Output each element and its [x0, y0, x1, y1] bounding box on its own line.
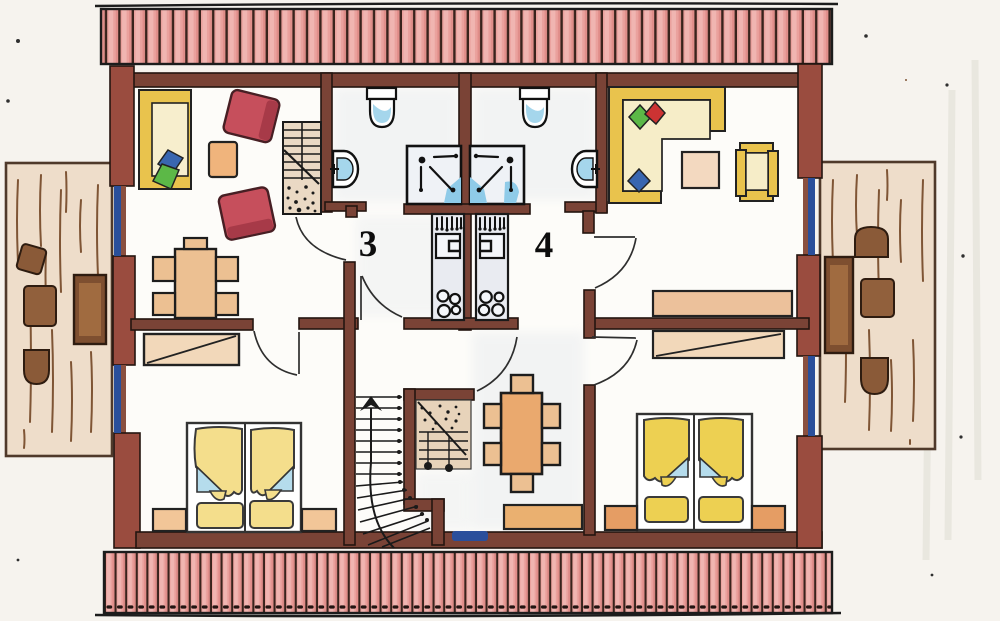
svg-text:4: 4: [535, 225, 554, 266]
svg-text:3: 3: [359, 224, 378, 265]
